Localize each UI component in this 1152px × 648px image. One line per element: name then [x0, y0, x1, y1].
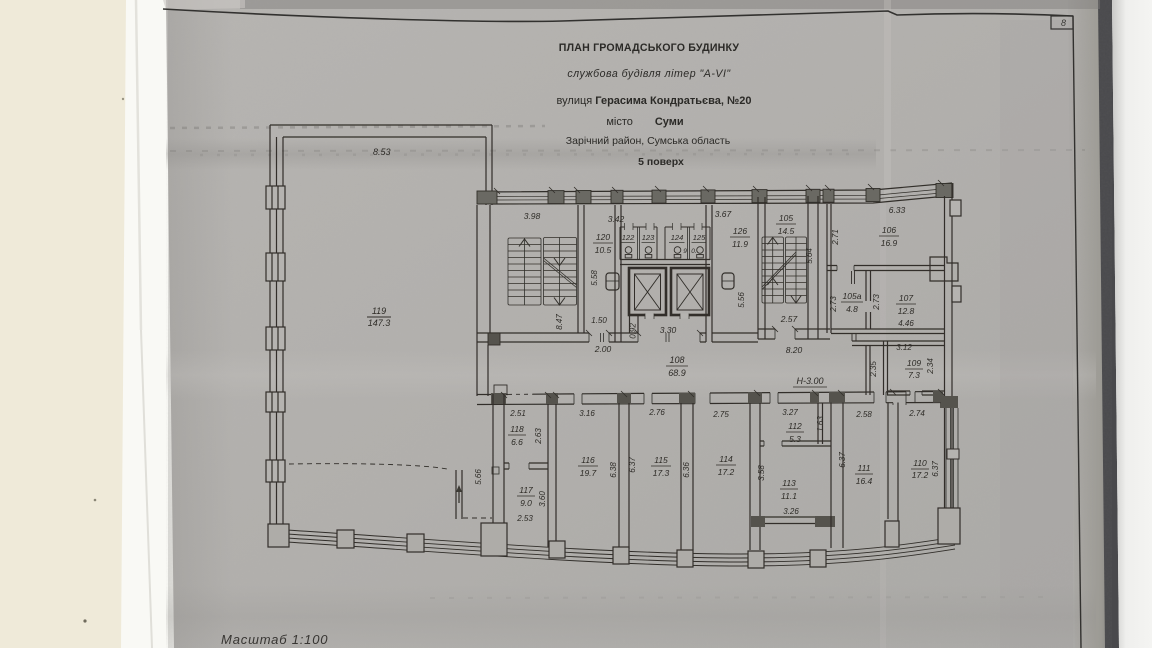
svg-text:5.3: 5.3 [789, 434, 801, 444]
svg-text:6.36: 6.36 [682, 462, 691, 478]
svg-text:112: 112 [788, 421, 802, 431]
svg-text:16.9: 16.9 [881, 238, 898, 248]
svg-text:3.16: 3.16 [579, 409, 595, 418]
svg-text:124: 124 [671, 233, 684, 242]
svg-text:4.8: 4.8 [846, 304, 858, 314]
svg-text:5.64: 5.64 [805, 248, 814, 264]
svg-text:5.56: 5.56 [737, 292, 746, 308]
svg-text:3.30: 3.30 [660, 325, 677, 335]
svg-text:5 поверх: 5 поверх [638, 156, 684, 168]
svg-text:8: 8 [1061, 18, 1066, 28]
svg-text:2.63: 2.63 [534, 428, 543, 445]
svg-text:2.73: 2.73 [829, 296, 838, 313]
svg-text:3.58: 3.58 [757, 465, 766, 481]
svg-text:6.33: 6.33 [889, 205, 906, 215]
svg-text:14.5: 14.5 [778, 226, 795, 236]
svg-text:вулиця Герасима Кондратьєва,: вулиця Герасима Кондратьєва, №20 [557, 95, 752, 107]
svg-text:3.98: 3.98 [524, 211, 541, 221]
svg-text:6.37: 6.37 [931, 461, 940, 477]
svg-text:3.26: 3.26 [783, 507, 799, 516]
svg-text:1.50: 1.50 [591, 316, 607, 325]
svg-text:Зарічний район, Сумська област: Зарічний район, Сумська область [566, 135, 731, 147]
svg-text:11.9: 11.9 [732, 239, 748, 249]
svg-text:3.67: 3.67 [715, 209, 732, 219]
svg-text:114: 114 [719, 454, 733, 464]
svg-text:3.27: 3.27 [782, 408, 798, 417]
svg-text:123: 123 [642, 233, 655, 242]
svg-text:107: 107 [899, 293, 913, 303]
svg-text:147.3: 147.3 [368, 318, 391, 328]
svg-text:118: 118 [510, 424, 524, 434]
svg-text:110: 110 [913, 458, 927, 468]
svg-text:3.60: 3.60 [538, 491, 547, 507]
svg-text:8.47: 8.47 [555, 314, 564, 330]
svg-text:8.53: 8.53 [373, 147, 391, 157]
svg-text:1.63: 1.63 [816, 416, 825, 432]
svg-text:2.51: 2.51 [509, 409, 526, 418]
svg-text:117: 117 [519, 485, 533, 495]
svg-text:Масштаб 1:100: Масштаб 1:100 [221, 632, 328, 647]
svg-text:17.3: 17.3 [653, 468, 670, 478]
svg-text:2.35: 2.35 [869, 361, 878, 378]
svg-text:6.38: 6.38 [609, 462, 618, 478]
svg-text:9.0: 9.0 [520, 498, 532, 508]
svg-text:122: 122 [622, 233, 635, 242]
svg-text:2.74: 2.74 [908, 409, 925, 418]
svg-text:Н-3.00: Н-3.00 [796, 376, 823, 386]
svg-text:11.1: 11.1 [781, 491, 797, 501]
svg-text:службова будівля літер "А-VI": службова будівля літер "А-VI" [567, 68, 731, 80]
svg-text:3.12: 3.12 [896, 343, 912, 352]
svg-text:115: 115 [654, 455, 668, 465]
svg-text:2.57: 2.57 [780, 314, 798, 324]
svg-text:111: 111 [858, 463, 871, 473]
svg-text:2.53: 2.53 [516, 514, 533, 523]
svg-text:6.37: 6.37 [838, 452, 847, 468]
svg-text:2.00: 2.00 [594, 344, 612, 354]
svg-text:2.76: 2.76 [648, 408, 665, 417]
svg-text:9: 9 [683, 248, 687, 255]
svg-text:6.37: 6.37 [628, 457, 637, 473]
svg-text:126: 126 [733, 226, 747, 236]
svg-text:3.42: 3.42 [608, 214, 625, 224]
svg-text:2.71: 2.71 [831, 229, 840, 246]
svg-text:106: 106 [882, 225, 896, 235]
svg-text:2.73: 2.73 [872, 294, 881, 311]
svg-text:120: 120 [596, 232, 610, 242]
svg-text:2.58: 2.58 [855, 410, 872, 419]
svg-text:10.5: 10.5 [595, 245, 612, 255]
svg-text:7.3: 7.3 [908, 370, 920, 380]
svg-text:105: 105 [779, 213, 793, 223]
svg-text:17.2: 17.2 [912, 470, 929, 480]
svg-text:68.9: 68.9 [668, 368, 686, 378]
svg-text:6.6: 6.6 [511, 437, 523, 447]
svg-text:5.58: 5.58 [590, 270, 599, 286]
svg-text:12.8: 12.8 [898, 306, 915, 316]
svg-text:2.34: 2.34 [926, 358, 935, 375]
svg-text:119: 119 [372, 306, 386, 316]
svg-text:105а: 105а [843, 291, 862, 301]
svg-text:4.46: 4.46 [898, 319, 914, 328]
svg-text:125: 125 [693, 233, 706, 242]
svg-text:8.20: 8.20 [786, 345, 803, 355]
svg-text:0.: 0. [691, 248, 697, 255]
svg-text:19.7: 19.7 [580, 468, 597, 478]
svg-text:2.75: 2.75 [712, 410, 729, 419]
svg-text:116: 116 [581, 455, 595, 465]
svg-text:16.4: 16.4 [856, 476, 873, 486]
svg-text:113: 113 [782, 478, 796, 488]
svg-text:17.2: 17.2 [718, 467, 735, 477]
svg-text:109: 109 [907, 358, 921, 368]
svg-text:108: 108 [669, 355, 684, 365]
svg-text:5.66: 5.66 [474, 469, 483, 485]
svg-text:ПЛАН ГРОМАДСЬКОГО БУДИНКУ: ПЛАН ГРОМАДСЬКОГО БУДИНКУ [559, 42, 740, 54]
